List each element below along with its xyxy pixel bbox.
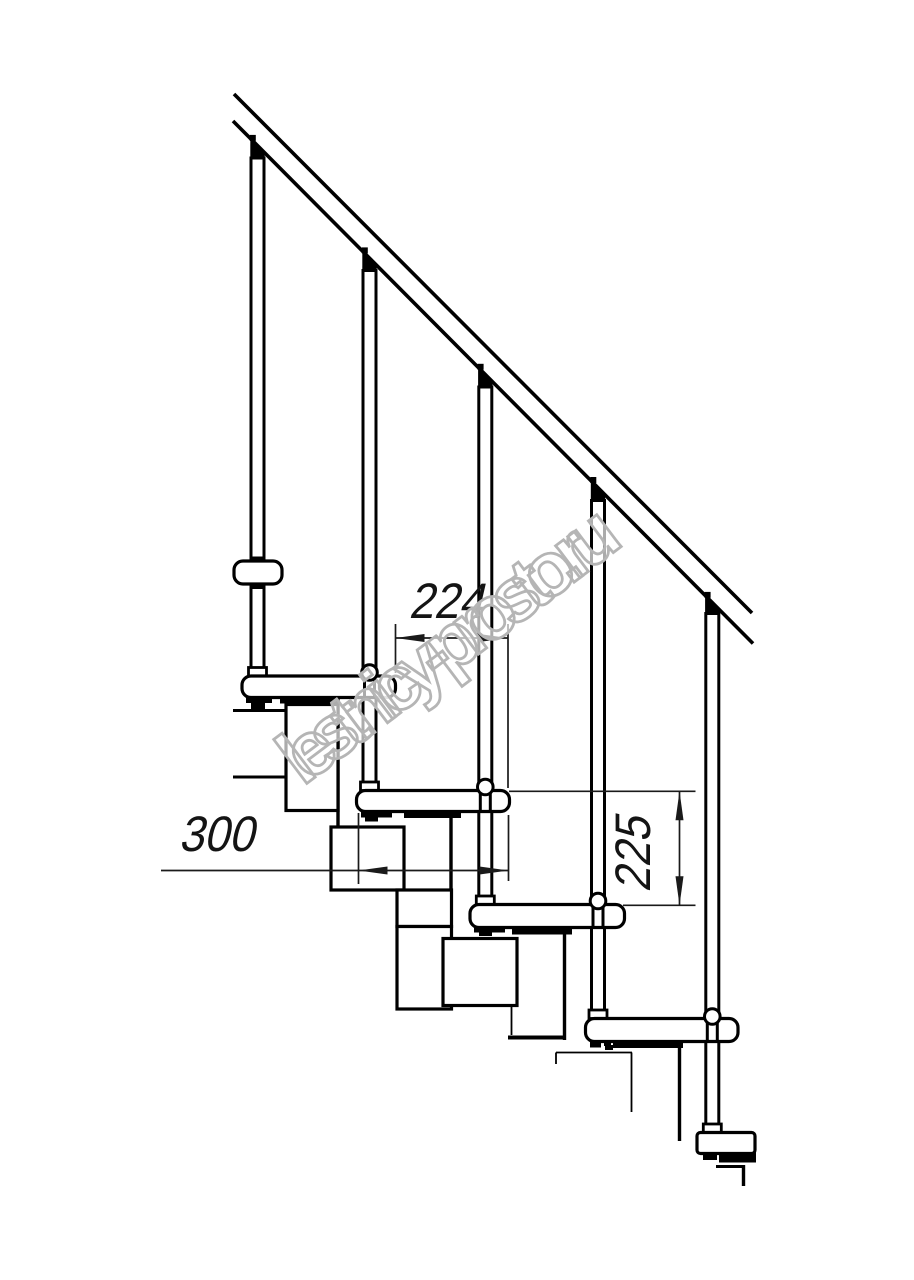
svg-text:225: 225 [605,807,661,895]
svg-text:300: 300 [176,806,264,862]
